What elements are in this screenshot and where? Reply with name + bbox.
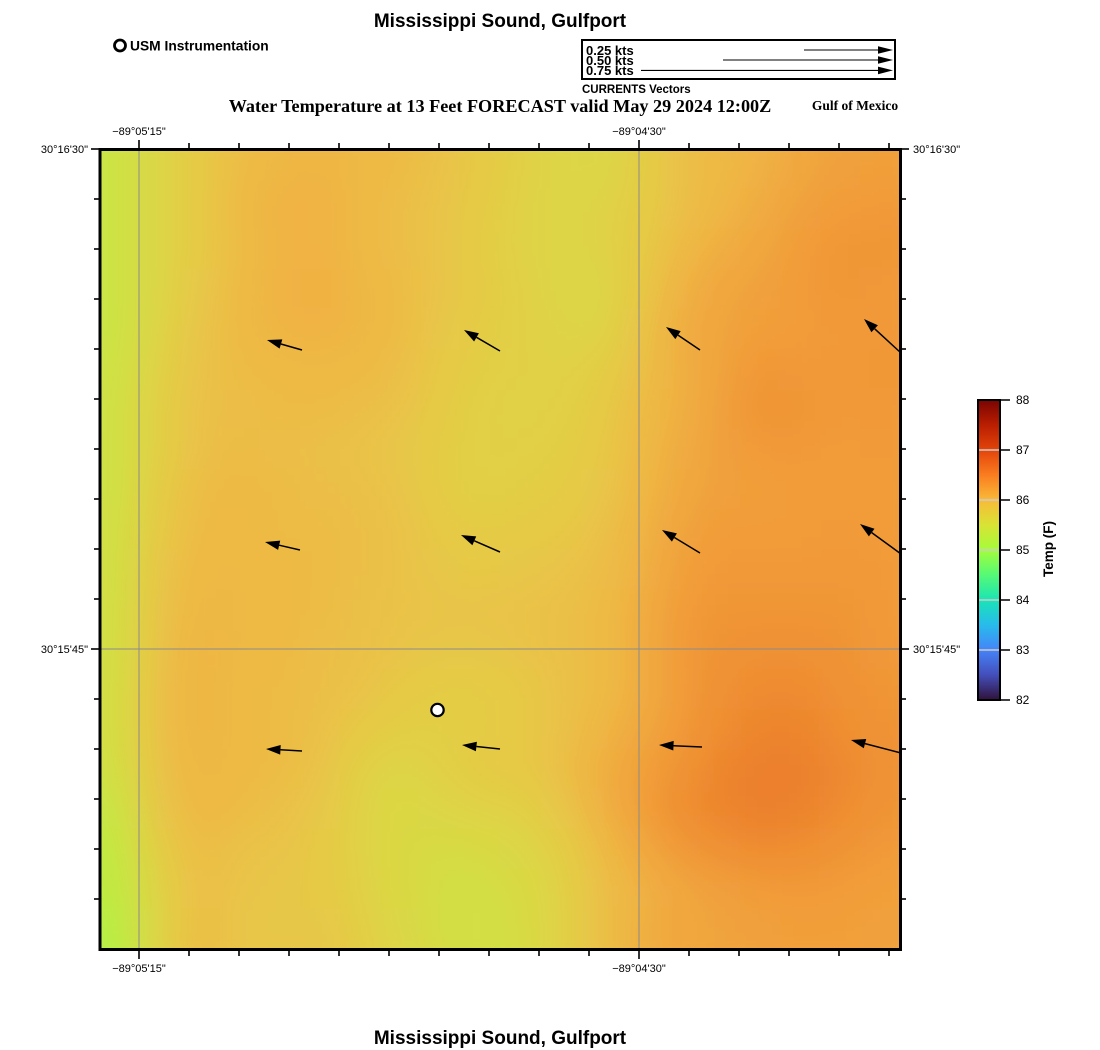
svg-text:88: 88 <box>1016 393 1030 407</box>
svg-text:Gulf of Mexico: Gulf of Mexico <box>812 98 898 113</box>
svg-text:84: 84 <box>1016 593 1030 607</box>
svg-text:Temp (F): Temp (F) <box>1041 521 1056 577</box>
svg-text:Mississippi Sound, Gulfport: Mississippi Sound, Gulfport <box>374 1028 627 1049</box>
svg-text:0.75 kts: 0.75 kts <box>586 63 634 78</box>
svg-text:−89°04'30": −89°04'30" <box>612 963 666 975</box>
svg-text:USM Instrumentation: USM Instrumentation <box>130 39 269 54</box>
svg-text:30°16'30": 30°16'30" <box>41 144 88 156</box>
svg-text:86: 86 <box>1016 493 1030 507</box>
svg-text:−89°05'15": −89°05'15" <box>112 963 166 975</box>
svg-text:82: 82 <box>1016 693 1030 707</box>
svg-text:87: 87 <box>1016 443 1030 457</box>
svg-text:−89°04'30": −89°04'30" <box>612 126 666 138</box>
svg-text:CURRENTS Vectors: CURRENTS Vectors <box>582 84 691 96</box>
svg-text:30°15'45": 30°15'45" <box>913 644 960 656</box>
svg-text:83: 83 <box>1016 643 1030 657</box>
svg-text:85: 85 <box>1016 543 1030 557</box>
svg-text:−89°05'15": −89°05'15" <box>112 126 166 138</box>
svg-text:30°16'30": 30°16'30" <box>913 144 960 156</box>
svg-text:Water Temperature at 13 Feet F: Water Temperature at 13 Feet FORECAST va… <box>229 96 772 116</box>
svg-text:Mississippi Sound, Gulfport: Mississippi Sound, Gulfport <box>374 11 627 32</box>
svg-text:30°15'45": 30°15'45" <box>41 644 88 656</box>
